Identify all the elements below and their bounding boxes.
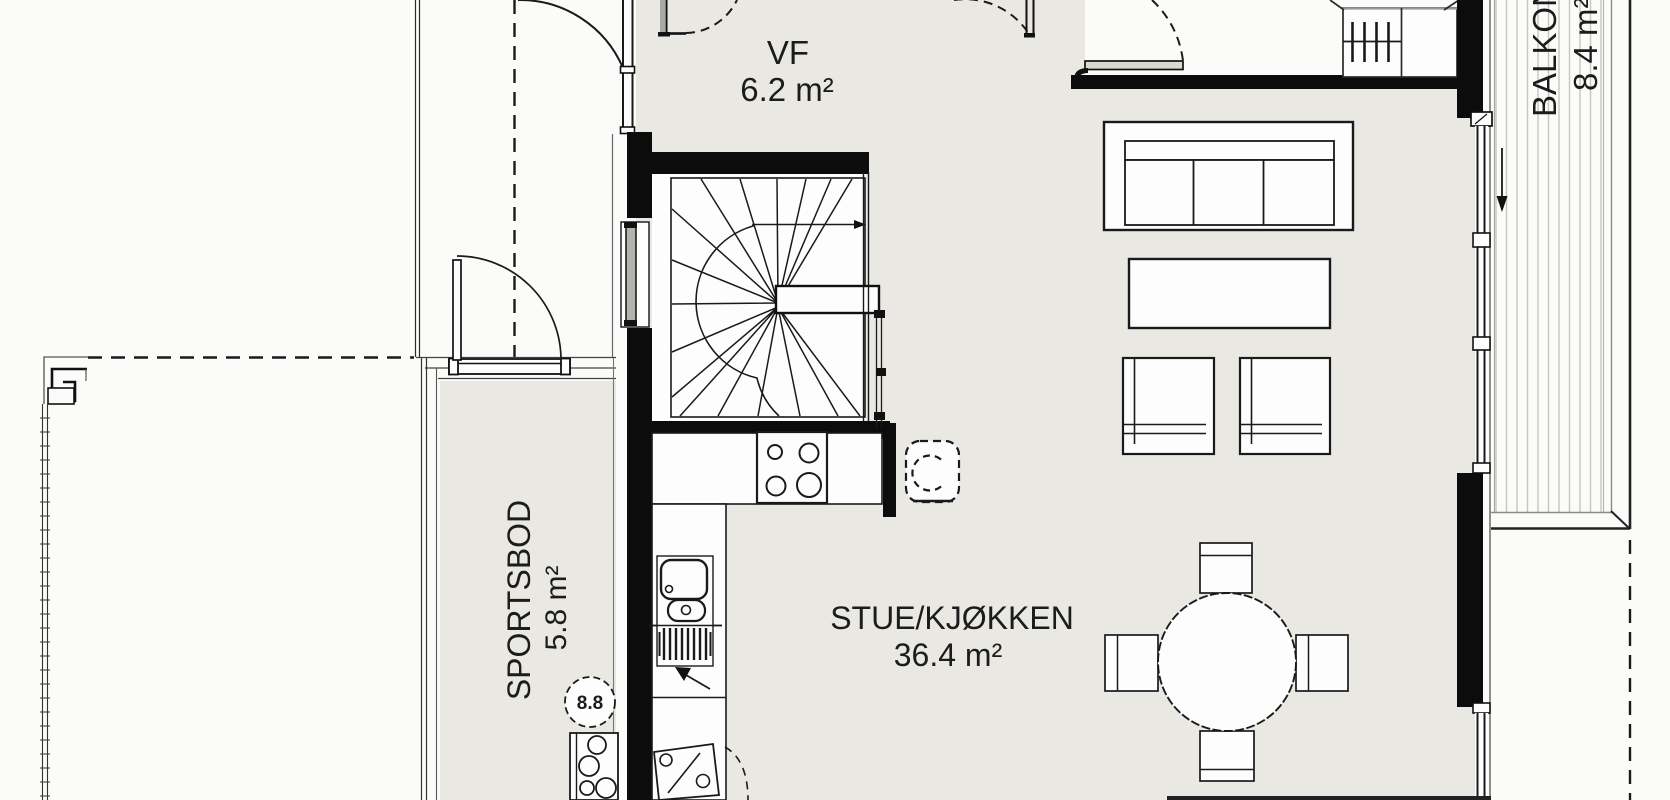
- svg-text:SPORTSBOD: SPORTSBOD: [501, 500, 537, 700]
- svg-text:VF: VF: [767, 34, 809, 71]
- svg-text:BALKONG: BALKONG: [1526, 0, 1563, 117]
- svg-text:8.4 m²: 8.4 m²: [1567, 0, 1604, 91]
- svg-text:8.8: 8.8: [577, 693, 603, 714]
- svg-text:6.2 m²: 6.2 m²: [740, 71, 834, 108]
- svg-text:36.4 m²: 36.4 m²: [894, 637, 1003, 673]
- svg-text:STUE/KJØKKEN: STUE/KJØKKEN: [830, 600, 1074, 636]
- svg-text:5.8 m²: 5.8 m²: [540, 565, 573, 650]
